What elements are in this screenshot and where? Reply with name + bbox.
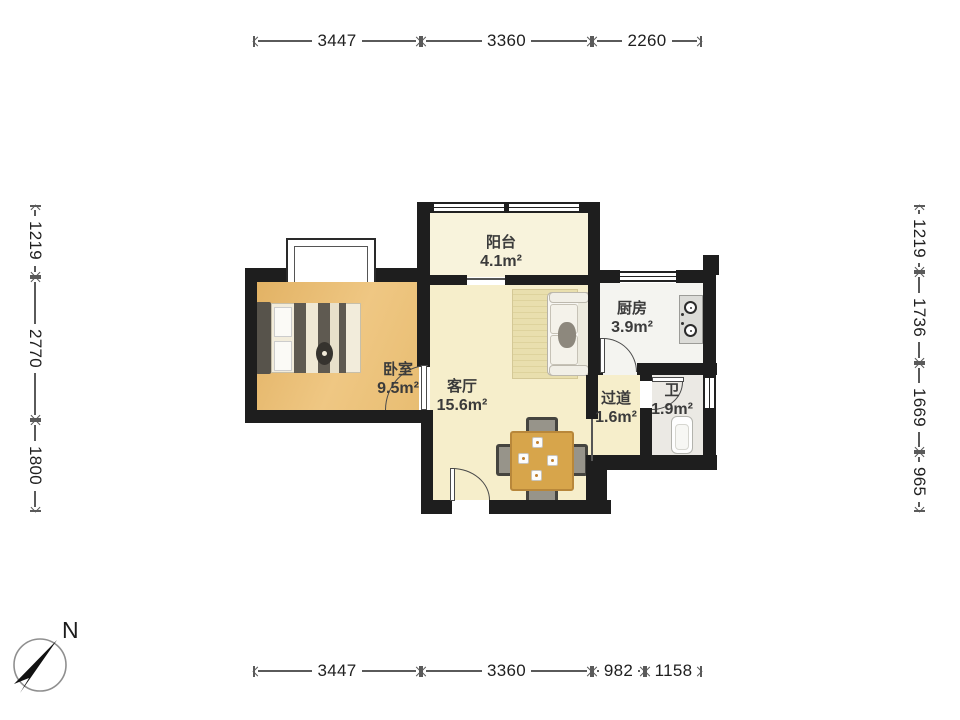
room-area: 9.5m²: [377, 379, 419, 398]
room-name: 卧室: [377, 360, 419, 379]
dimension-segment: 1800: [25, 420, 45, 512]
entry-door-leaf: [450, 468, 455, 501]
wall: [489, 500, 611, 514]
dimension-segment: 965: [909, 452, 929, 512]
wall: [421, 500, 452, 514]
room-area: 15.6m²: [437, 396, 488, 415]
dimension-value: 1800: [25, 441, 45, 490]
room-label-kitchen: 厨房 3.9m²: [611, 299, 653, 337]
dining-chair-seat: [529, 420, 555, 431]
hallway-threshold: [591, 419, 593, 461]
bed-headboard: [256, 302, 271, 374]
wall: [428, 275, 467, 285]
window: [703, 378, 716, 408]
dimension-value: 3360: [482, 661, 531, 681]
floor-plan-canvas: 阳台 4.1m² 卧室 9.5m² 客厅 15.6m² 厨房 3.9m² 过道 …: [0, 0, 960, 720]
dimension-segment: 1219: [909, 205, 929, 272]
wall: [588, 203, 600, 287]
dimension-value: 1669: [909, 383, 929, 432]
dimension-value: 1158: [650, 661, 698, 681]
dimension-segment: 1736: [909, 272, 929, 363]
plate: [531, 470, 542, 481]
wall: [417, 202, 430, 277]
window: [509, 202, 579, 213]
dimension-value: 1219: [909, 214, 929, 263]
dimension-value: 3447: [312, 661, 361, 681]
room-label-bedroom: 卧室 9.5m²: [377, 360, 419, 398]
wall: [417, 202, 434, 213]
sofa-armrest: [549, 292, 589, 303]
room-area: 4.1m²: [480, 252, 522, 271]
compass-north-label: N: [62, 617, 79, 644]
dimension-value: 982: [599, 661, 638, 681]
bay-window-inner: [294, 246, 368, 282]
room-name: 厨房: [611, 299, 653, 318]
dimension-value: 3447: [312, 31, 361, 51]
dining-chair-seat: [574, 447, 585, 473]
dimension-value: 1219: [25, 216, 45, 265]
bed-cushion-dot: [322, 351, 327, 356]
bed-sheet-stripe: [330, 303, 339, 373]
dimension-segment: 1669: [909, 363, 929, 452]
room-name: 客厅: [437, 377, 488, 396]
toilet-inner: [675, 424, 689, 450]
balcony-threshold: [467, 278, 505, 280]
dimension-chain-left: 1219 2770 1800: [25, 205, 45, 512]
window: [434, 202, 504, 213]
stove-burner: [684, 301, 697, 314]
sofa-armrest: [549, 365, 589, 376]
dimension-segment: 2260: [592, 31, 702, 51]
room-area: 3.9m²: [611, 318, 653, 337]
kitchen-door-leaf: [600, 338, 605, 373]
dimension-segment: 3447: [253, 31, 421, 51]
room-name: 阳台: [480, 233, 522, 252]
wall: [505, 275, 588, 285]
wall: [245, 410, 433, 423]
wall: [676, 270, 703, 283]
dimension-segment: 982: [592, 661, 645, 681]
plate: [518, 453, 529, 464]
room-label-hallway: 过道 1.6m²: [595, 389, 637, 427]
room-area: 1.9m²: [651, 400, 693, 419]
wall: [588, 285, 600, 375]
compass-icon: [12, 637, 70, 695]
room-area: 1.6m²: [595, 408, 637, 427]
window: [620, 271, 676, 282]
plate: [547, 455, 558, 466]
dimension-segment: 3360: [421, 31, 592, 51]
dimension-value: 1736: [909, 293, 929, 342]
sofa-throw: [558, 322, 576, 348]
dimension-segment: 1158: [645, 661, 702, 681]
stove-knob: [681, 322, 684, 325]
room-name: 卫: [651, 381, 693, 400]
dining-chair-seat: [499, 447, 510, 473]
wall: [703, 262, 716, 378]
dimension-value: 2260: [622, 31, 671, 51]
wall: [421, 410, 433, 514]
stove-burner: [684, 324, 697, 337]
bedroom-door-leaf: [421, 365, 427, 410]
bed-pillow: [274, 341, 292, 371]
dimension-segment: 3447: [253, 661, 421, 681]
dimension-segment: 1219: [25, 205, 45, 277]
dimension-segment: 3360: [421, 661, 592, 681]
dimension-chain-right: 1219 1736 1669 965: [909, 205, 929, 512]
wall: [586, 461, 598, 501]
wall: [600, 270, 620, 283]
room-label-living: 客厅 15.6m²: [437, 377, 488, 415]
room-label-bath: 卫 1.9m²: [651, 381, 693, 419]
dimension-value: 3360: [482, 31, 531, 51]
stove-knob: [681, 313, 684, 316]
bed-sheet-stripe: [306, 303, 318, 373]
dimension-value: 965: [909, 462, 929, 501]
bed-pillow: [274, 307, 292, 337]
wall: [245, 268, 257, 423]
dimension-segment: 2770: [25, 277, 45, 420]
wall: [637, 363, 717, 375]
dimension-chain-bottom: 3447 3360 982 1158: [253, 661, 702, 681]
room-name: 过道: [595, 389, 637, 408]
dimension-chain-top: 3447 3360 2260: [253, 31, 702, 51]
dimension-value: 2770: [25, 324, 45, 373]
plate: [532, 437, 543, 448]
room-label-balcony: 阳台 4.1m²: [480, 233, 522, 271]
